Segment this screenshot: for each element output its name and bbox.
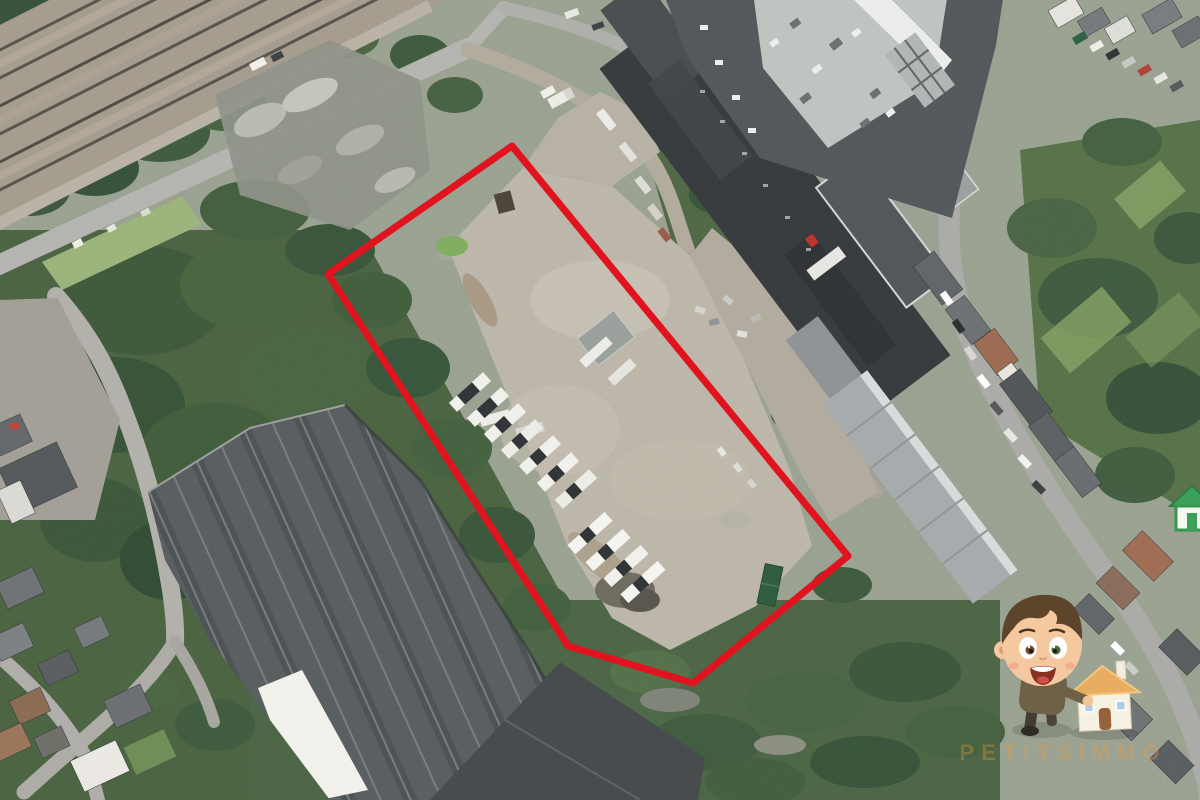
grain-overlay: [0, 0, 1200, 800]
watermark-text: PETITSIMMO: [960, 740, 1167, 765]
aerial-photo: PETITSIMMO: [0, 0, 1200, 800]
screenshot-root: PETITSIMMO: [0, 0, 1200, 800]
